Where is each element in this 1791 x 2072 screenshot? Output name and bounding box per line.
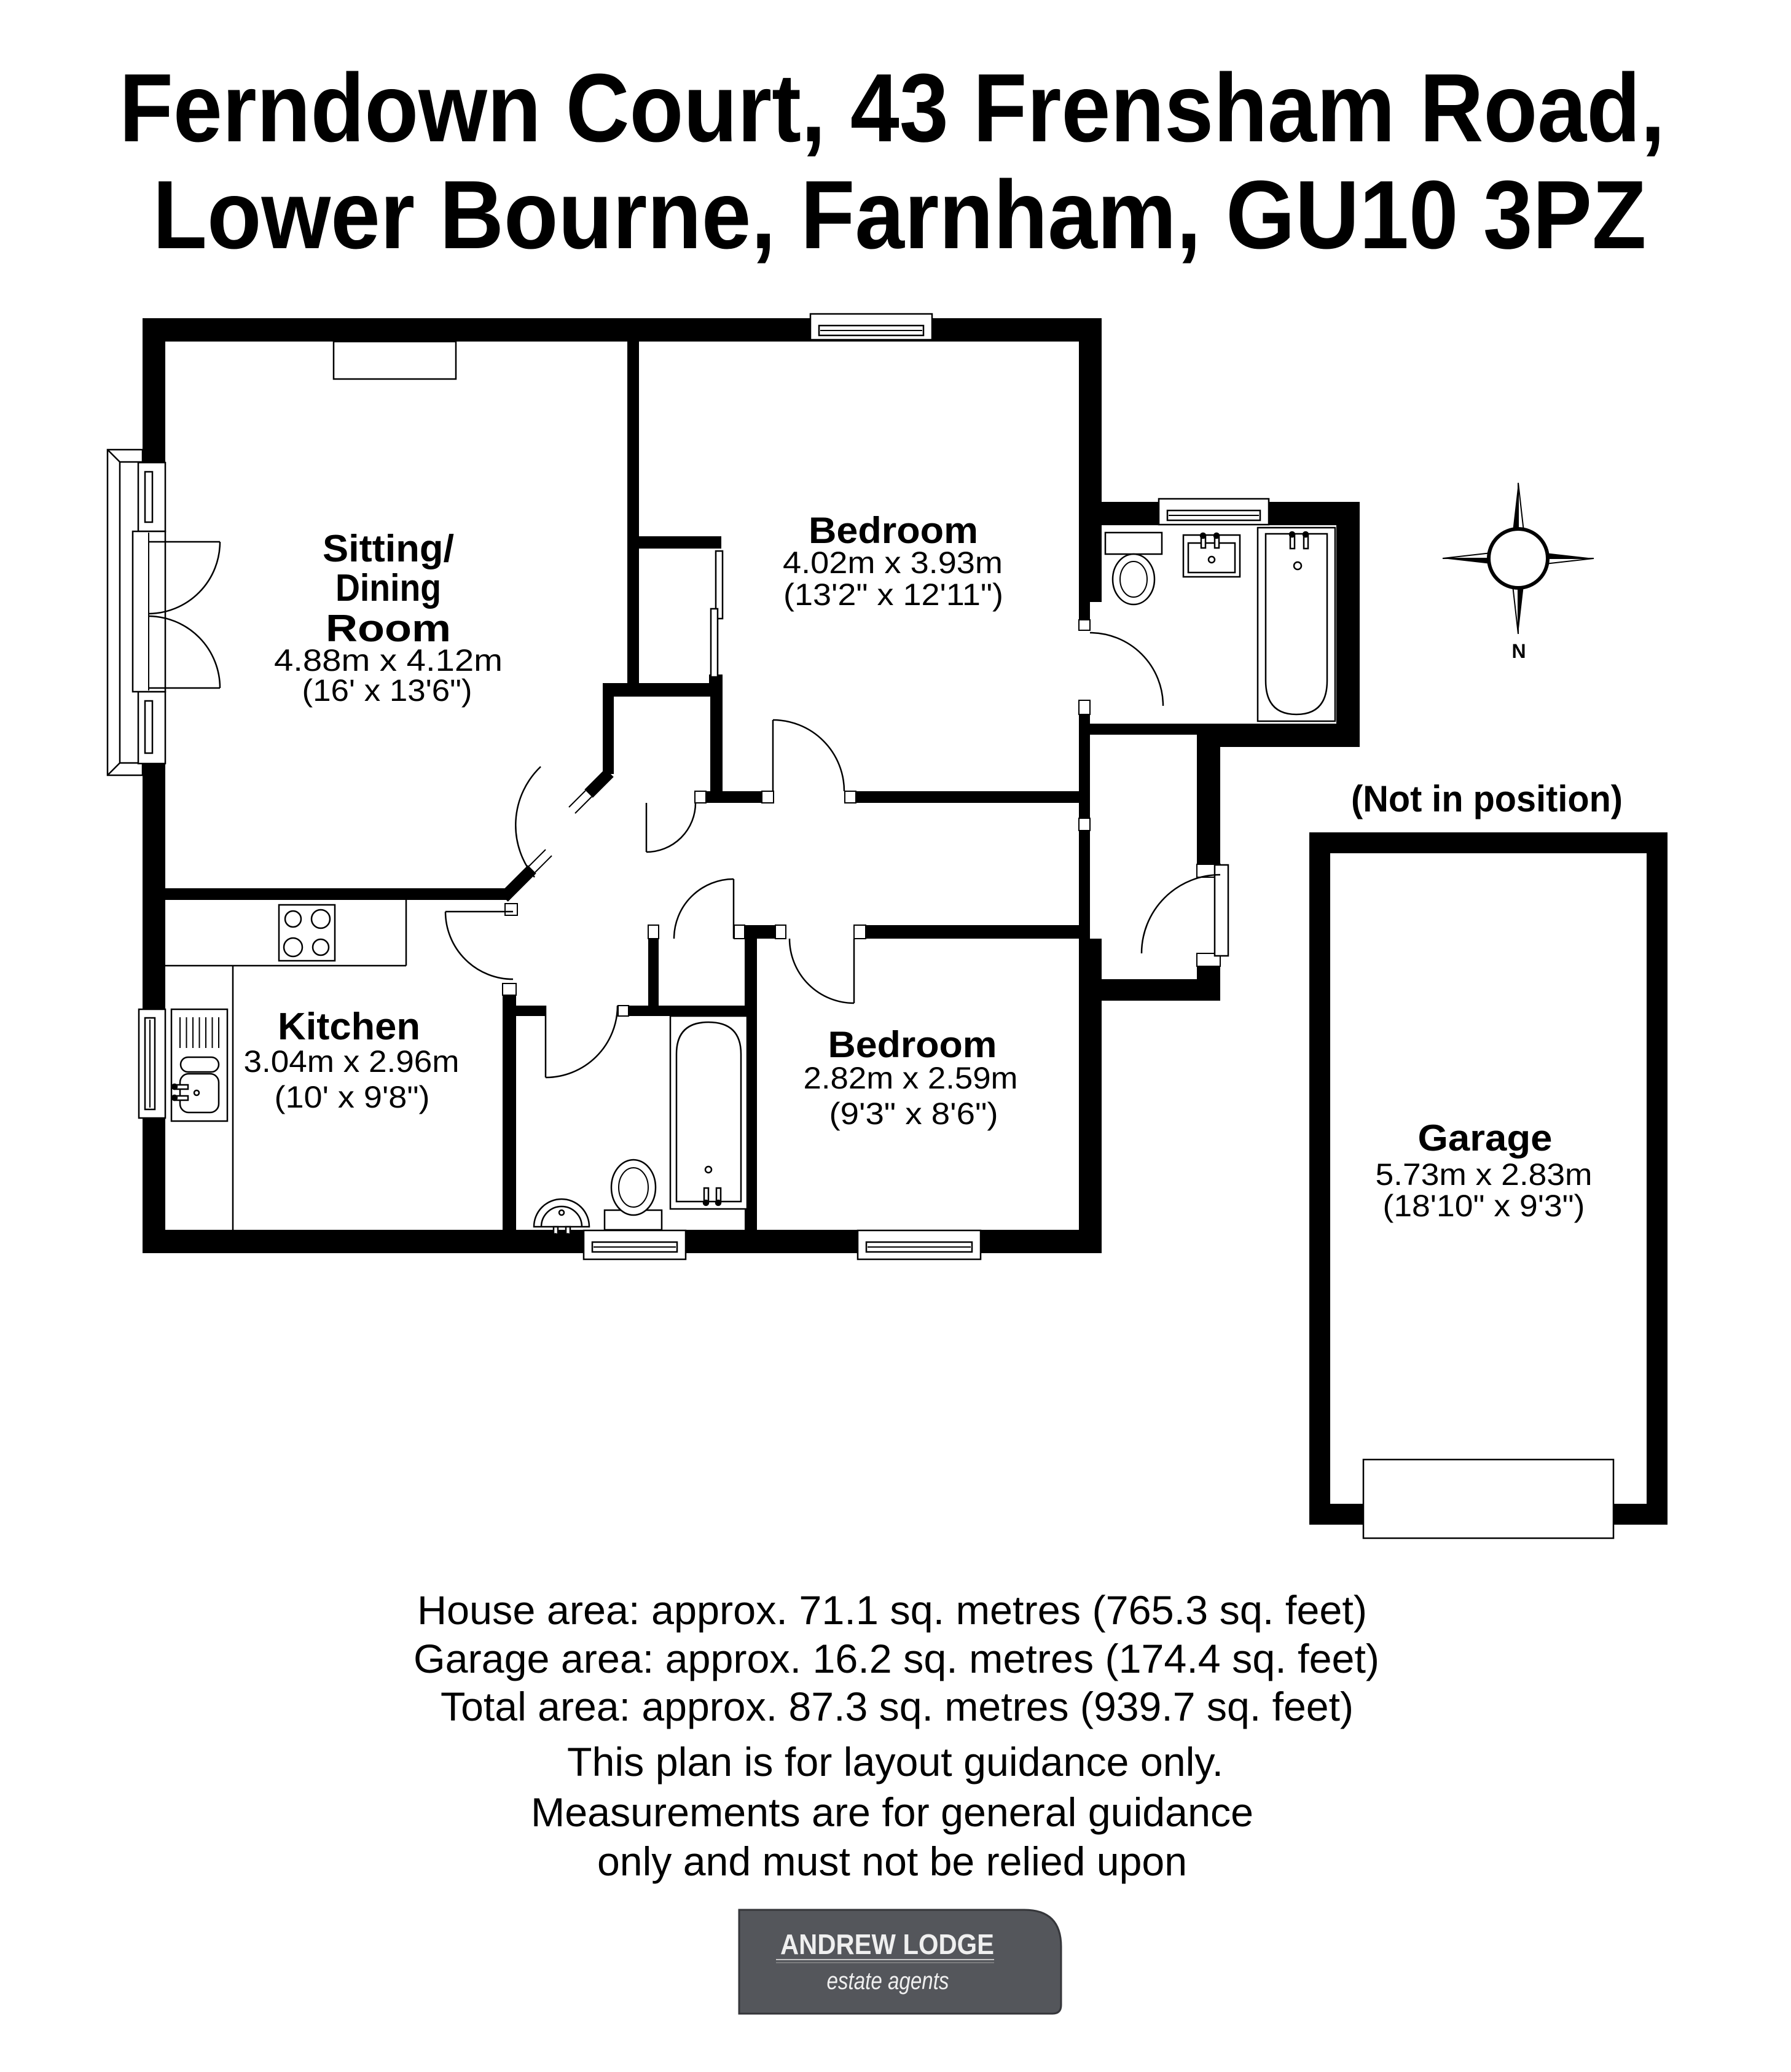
svg-text:Bedroom: Bedroom — [809, 510, 978, 551]
svg-text:only and must not be relied up: only and must not be relied upon — [597, 1839, 1187, 1884]
svg-text:Kitchen: Kitchen — [278, 1006, 420, 1048]
svg-text:(Not in position): (Not in position) — [1351, 778, 1623, 819]
svg-text:2.82m x 2.59m: 2.82m x 2.59m — [804, 1061, 1018, 1095]
svg-text:Ferndown Court, 43 Frensham Ro: Ferndown Court, 43 Frensham Road, — [119, 54, 1665, 162]
svg-text:(10' x 9'8"): (10' x 9'8") — [275, 1080, 430, 1114]
svg-text:Bedroom: Bedroom — [828, 1024, 997, 1065]
svg-text:5.73m x 2.83m: 5.73m x 2.83m — [1376, 1157, 1593, 1192]
svg-text:Garage: Garage — [1418, 1117, 1553, 1159]
svg-text:Measurements are for general g: Measurements are for general guidance — [531, 1789, 1253, 1835]
svg-text:Dining: Dining — [335, 567, 441, 609]
svg-text:Garage area: approx. 16.2 sq.: Garage area: approx. 16.2 sq. metres (17… — [413, 1636, 1379, 1681]
svg-text:ANDREW LODGE: ANDREW LODGE — [780, 1928, 994, 1960]
svg-text:4.02m x 3.93m: 4.02m x 3.93m — [783, 545, 1003, 580]
svg-text:Total area: approx. 87.3 sq. m: Total area: approx. 87.3 sq. metres (939… — [441, 1684, 1354, 1729]
svg-text:Sitting/: Sitting/ — [323, 528, 454, 570]
svg-text:(9'3" x 8'6"): (9'3" x 8'6") — [829, 1097, 998, 1131]
svg-text:3.04m x 2.96m: 3.04m x 2.96m — [244, 1044, 460, 1079]
svg-text:(13'2" x 12'11"): (13'2" x 12'11") — [783, 577, 1003, 612]
svg-text:This plan is for layout guidan: This plan is for layout guidance only. — [567, 1739, 1223, 1785]
svg-text:(16' x 13'6"): (16' x 13'6") — [302, 673, 472, 708]
svg-text:N: N — [1511, 640, 1526, 662]
svg-text:(18'10" x 9'3"): (18'10" x 9'3") — [1383, 1189, 1585, 1223]
svg-text:4.88m x 4.12m: 4.88m x 4.12m — [274, 643, 503, 678]
svg-text:House area: approx. 71.1 sq. m: House area: approx. 71.1 sq. metres (765… — [417, 1587, 1367, 1633]
svg-text:Lower Bourne, Farnham, GU10 3P: Lower Bourne, Farnham, GU10 3PZ — [153, 161, 1647, 269]
svg-text:estate agents: estate agents — [827, 1968, 949, 1995]
